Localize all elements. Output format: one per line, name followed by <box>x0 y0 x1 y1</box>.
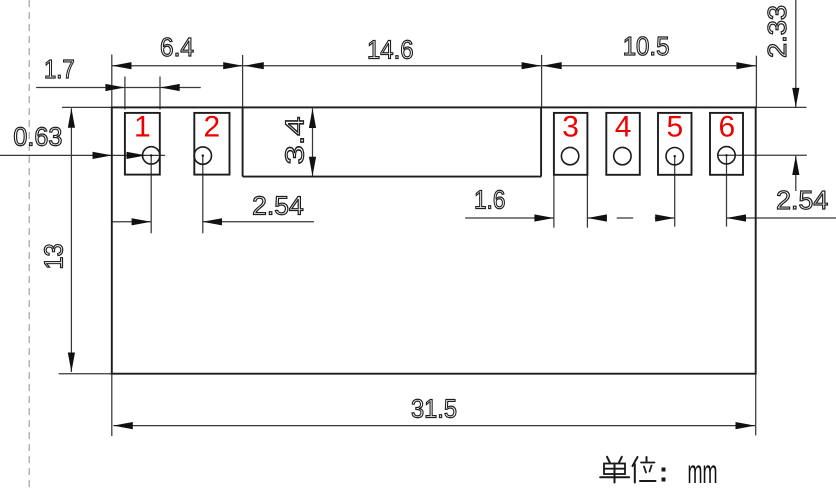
svg-text:2.33: 2.33 <box>762 5 792 58</box>
svg-text:6: 6 <box>718 111 735 144</box>
svg-text:2.54: 2.54 <box>252 191 304 221</box>
svg-text:31.5: 31.5 <box>411 394 457 424</box>
svg-text:2: 2 <box>204 111 221 144</box>
svg-text:1.7: 1.7 <box>44 54 75 84</box>
svg-text:10.5: 10.5 <box>623 31 670 61</box>
svg-text:1.6: 1.6 <box>474 185 505 215</box>
svg-text:6.4: 6.4 <box>160 32 194 62</box>
svg-text:1: 1 <box>134 111 151 144</box>
svg-text:3: 3 <box>562 111 579 144</box>
svg-text:mm: mm <box>688 453 718 490</box>
svg-text:4: 4 <box>615 111 632 144</box>
svg-text:0.63: 0.63 <box>13 122 62 152</box>
svg-text:2.54: 2.54 <box>776 185 828 215</box>
svg-text:5: 5 <box>666 111 683 144</box>
svg-text:3.4: 3.4 <box>280 117 310 165</box>
svg-text:14.6: 14.6 <box>367 35 414 65</box>
svg-text:13: 13 <box>39 244 69 270</box>
